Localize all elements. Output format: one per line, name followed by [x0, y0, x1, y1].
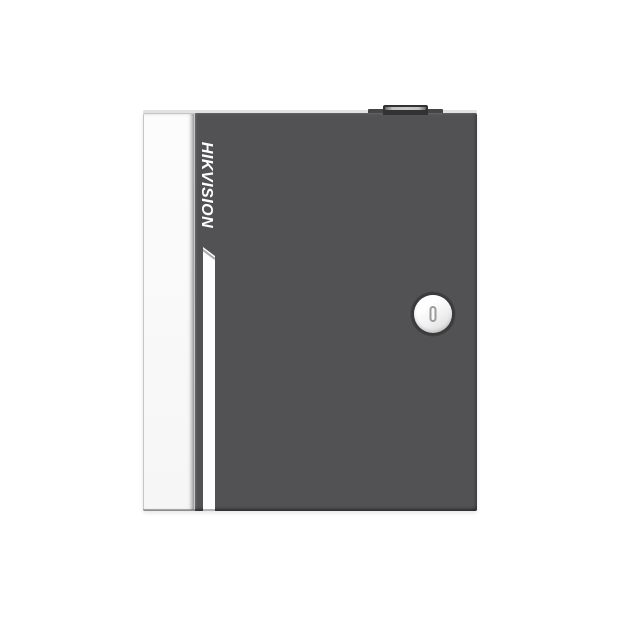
- knob-top-highlight: [385, 107, 426, 111]
- front-door: HIKVISION: [195, 113, 477, 511]
- hinge-side-panel: [143, 113, 195, 511]
- top-conduit-knob: [383, 105, 428, 115]
- controller-enclosure: HIKVISION: [143, 113, 477, 511]
- keyhole-slot-icon: [430, 306, 437, 322]
- decorative-stripe: [203, 247, 215, 511]
- brand-logo: HIKVISION: [197, 139, 215, 231]
- product-photo: HIKVISION: [0, 0, 620, 620]
- keyhole-lock: [414, 295, 452, 333]
